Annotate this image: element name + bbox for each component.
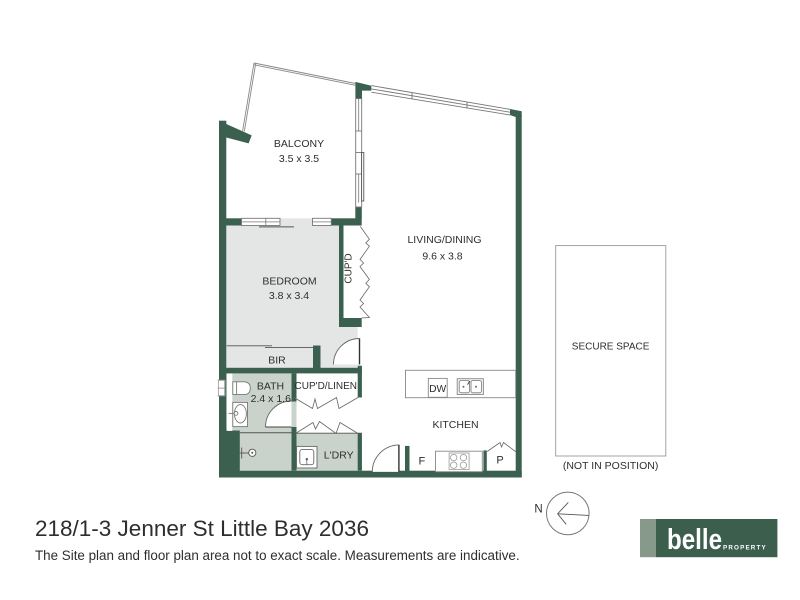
svg-text:KITCHEN: KITCHEN (432, 419, 478, 431)
svg-text:The Site plan and floor plan a: The Site plan and floor plan area not to… (35, 548, 520, 563)
svg-text:F: F (419, 456, 426, 468)
svg-text:BATH: BATH (257, 380, 284, 392)
svg-text:SECURE SPACE: SECURE SPACE (572, 342, 650, 353)
svg-text:3.5 x 3.5: 3.5 x 3.5 (279, 153, 319, 165)
svg-text:L'DRY: L'DRY (324, 450, 354, 462)
svg-text:9.6 x 3.8: 9.6 x 3.8 (422, 251, 462, 263)
svg-text:BIR: BIR (268, 355, 286, 367)
svg-text:218/1-3 Jenner St Little Bay 2: 218/1-3 Jenner St Little Bay 2036 (35, 516, 369, 541)
svg-text:BALCONY: BALCONY (274, 138, 324, 150)
svg-text:belle: belle (667, 524, 722, 556)
svg-text:LIVING/DINING: LIVING/DINING (407, 234, 481, 246)
svg-text:CUP'D: CUP'D (344, 253, 355, 283)
svg-text:2.4 x 1.6: 2.4 x 1.6 (251, 393, 291, 405)
svg-text:N: N (534, 504, 542, 516)
svg-text:(NOT IN POSITION): (NOT IN POSITION) (563, 460, 658, 472)
svg-text:PROPERTY: PROPERTY (723, 545, 767, 552)
svg-text:BEDROOM: BEDROOM (262, 276, 316, 288)
svg-text:DW: DW (429, 384, 446, 395)
svg-text:3.8 x 3.4: 3.8 x 3.4 (269, 290, 309, 302)
svg-text:P: P (496, 455, 503, 467)
svg-text:CUP'D/LINEN: CUP'D/LINEN (295, 381, 357, 392)
